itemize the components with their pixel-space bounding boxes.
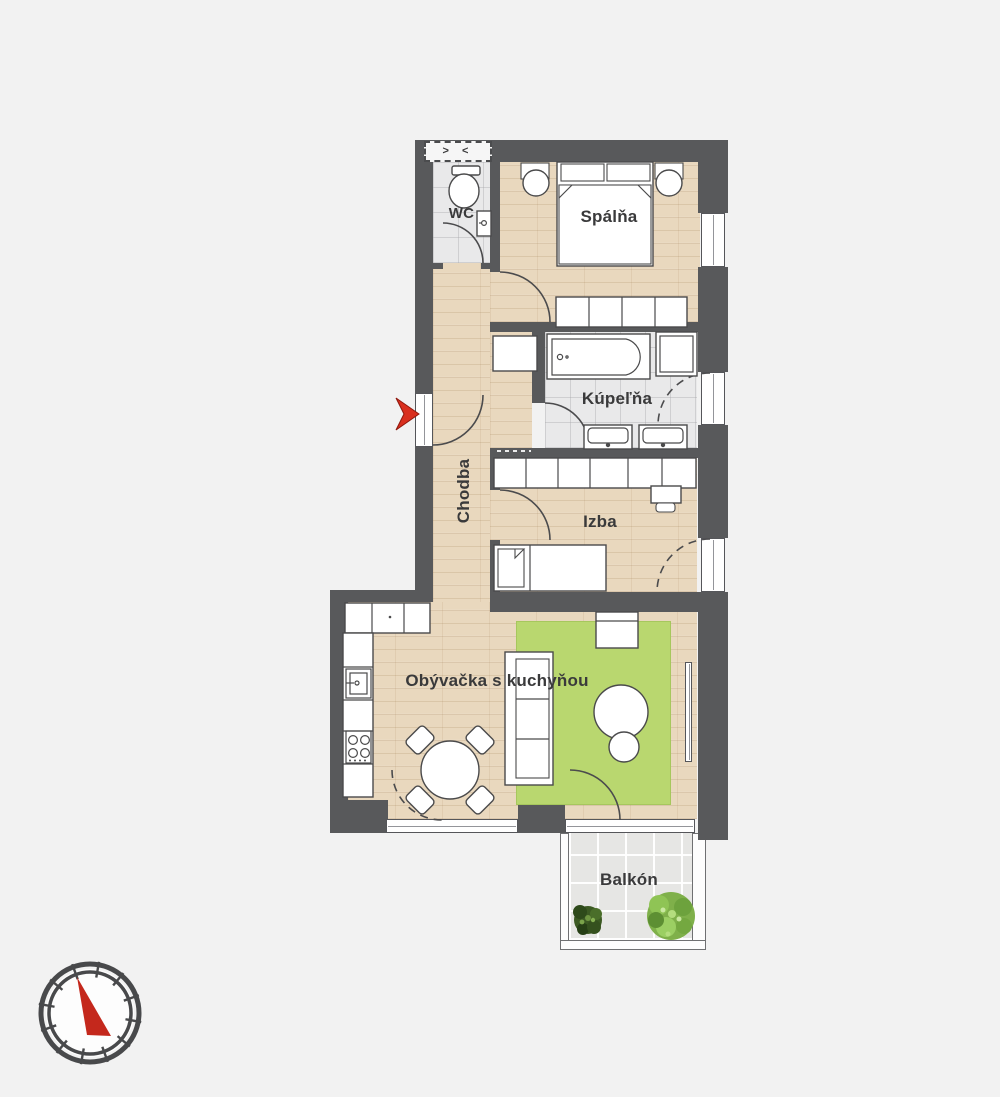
desk bbox=[651, 486, 681, 512]
izba-window-door-arc bbox=[657, 539, 710, 592]
nightstand bbox=[655, 163, 683, 196]
compass-icon bbox=[39, 962, 141, 1064]
wardrobe bbox=[556, 297, 687, 327]
washer-icon bbox=[656, 332, 697, 376]
room-label-kupelna: Kúpeľňa bbox=[547, 389, 687, 409]
plant-icon bbox=[573, 905, 602, 935]
room-label-chodba: Chodba bbox=[454, 426, 474, 556]
dining-set bbox=[404, 724, 495, 815]
bathroom-sink-icon bbox=[584, 425, 632, 449]
room-label-balkon: Balkón bbox=[559, 870, 699, 890]
bathtub-icon bbox=[547, 334, 650, 379]
spalna-door-arc bbox=[500, 272, 550, 322]
room-label-spalna: Spálňa bbox=[539, 207, 679, 227]
plant-icon bbox=[647, 892, 695, 940]
room-label-wc: WC bbox=[433, 204, 490, 224]
hall-closet bbox=[493, 336, 537, 371]
floor-plan: > < bbox=[0, 0, 1000, 1097]
dining-table bbox=[421, 741, 479, 799]
plan-overlay bbox=[0, 0, 1000, 1097]
room-label-izba: Izba bbox=[540, 512, 660, 532]
single-bed bbox=[494, 545, 606, 591]
entrance-arrow-icon bbox=[396, 398, 419, 430]
tv-stand bbox=[596, 612, 638, 648]
toilet-icon bbox=[449, 166, 480, 208]
kupelna-door-arc bbox=[545, 403, 589, 447]
nightstand bbox=[521, 163, 549, 196]
room-label-obyvacka: Obývačka s kuchyňou bbox=[387, 671, 607, 691]
balcony-door-arc bbox=[570, 770, 620, 820]
bathroom-sink-icon bbox=[639, 425, 687, 449]
kitchen-counter bbox=[343, 603, 430, 797]
wardrobe bbox=[494, 458, 696, 488]
coffee-table bbox=[594, 685, 648, 762]
kitchen-sink-icon bbox=[346, 669, 371, 698]
